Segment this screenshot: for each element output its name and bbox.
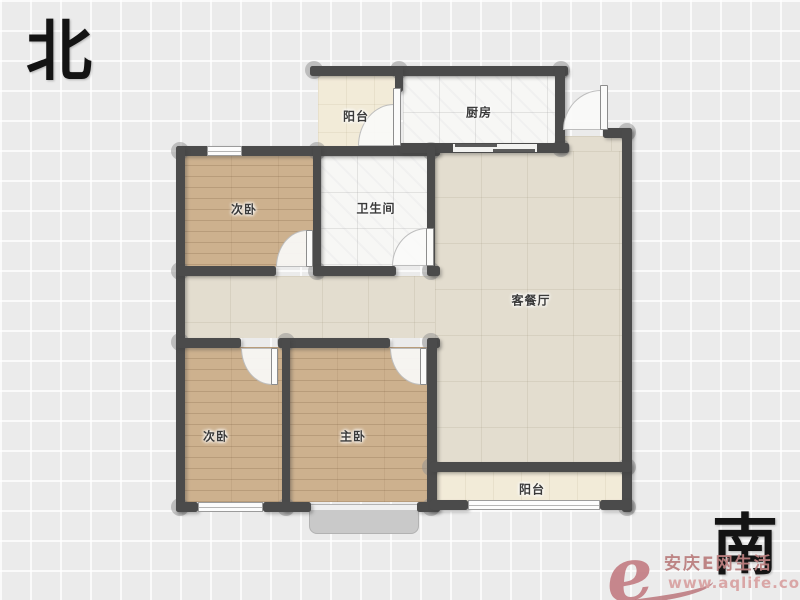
wall-bottom-seg1 <box>176 502 198 512</box>
wall-bedroom-top-south <box>176 266 276 276</box>
room-hallway-floor <box>184 276 435 338</box>
door-leaf-bedroom-top <box>306 230 313 267</box>
sliding-door-panel <box>493 149 535 152</box>
wall-top-outer <box>310 66 568 76</box>
door-leaf-balcony-top <box>393 88 401 146</box>
bay-window <box>309 504 419 534</box>
door-leaf-master <box>420 348 427 385</box>
sliding-door-panel <box>455 144 497 147</box>
window-balcony-bottom <box>468 500 600 510</box>
wall-bedroom-bathroom-divider <box>313 146 321 276</box>
sliding-door-kitchen <box>453 144 537 152</box>
wall-bathroom-south-east-seg <box>430 266 440 276</box>
wall-right-outer <box>622 128 632 512</box>
room-label-kitchen: 厨房 <box>466 104 492 121</box>
wall-bedroom-top-north <box>176 146 321 156</box>
room-label-balcony-bottom: 阳台 <box>519 481 545 498</box>
wall-bedrooms-divider <box>282 338 290 512</box>
wall-living-south <box>430 462 632 472</box>
floorplan-canvas: 北 南 <box>0 0 800 600</box>
watermark-site-url: www.aqlife.com <box>668 574 800 592</box>
wall-master-east <box>427 338 437 512</box>
room-label-balcony-top: 阳台 <box>343 108 369 125</box>
wall-balcony-bottom-seg2 <box>600 500 632 510</box>
wall-bedrooms-north-seg2 <box>278 338 390 348</box>
window-bedroom-bottom <box>198 502 263 512</box>
door-leaf-bedroom-bottom <box>271 348 278 385</box>
door-leaf-entry <box>600 85 608 130</box>
watermark-site-name: 安庆E网生活 <box>664 549 773 574</box>
room-label-bathroom: 卫生间 <box>356 200 395 217</box>
window-bedroom-top <box>207 146 242 156</box>
wall-bedrooms-north-seg1 <box>176 338 241 348</box>
wall-kitchen-east <box>555 66 565 153</box>
wall-bathroom-south-west-seg <box>313 266 396 276</box>
room-label-master: 主卧 <box>340 428 366 445</box>
room-label-living: 客餐厅 <box>511 292 550 309</box>
door-arc-entry <box>563 90 601 130</box>
wall-bottom-seg2 <box>263 502 311 512</box>
wall-left-outer <box>176 146 185 512</box>
door-leaf-bathroom <box>426 228 434 266</box>
room-label-bedroom-top: 次卧 <box>231 201 257 218</box>
room-label-bedroom-bottom: 次卧 <box>203 428 229 445</box>
wall-balcony-bottom-seg1 <box>430 500 468 510</box>
compass-north-label: 北 <box>26 18 92 84</box>
